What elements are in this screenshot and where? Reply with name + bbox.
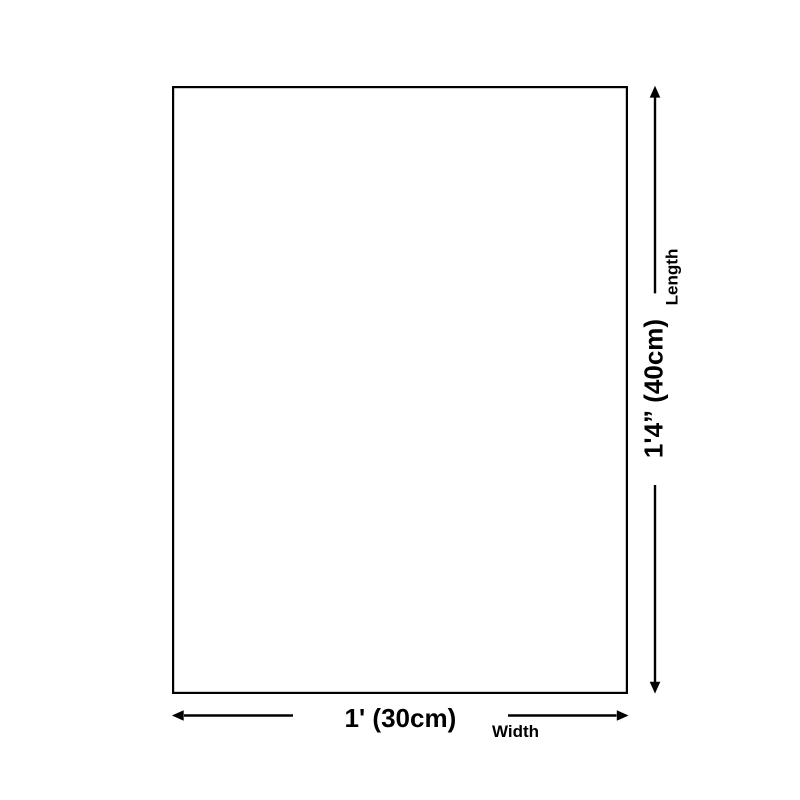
svg-text:Length: Length xyxy=(663,249,682,306)
svg-text:1' (30cm): 1' (30cm) xyxy=(345,703,457,733)
svg-text:Width: Width xyxy=(492,722,539,741)
svg-text:1'4” (40cm): 1'4” (40cm) xyxy=(639,319,669,458)
